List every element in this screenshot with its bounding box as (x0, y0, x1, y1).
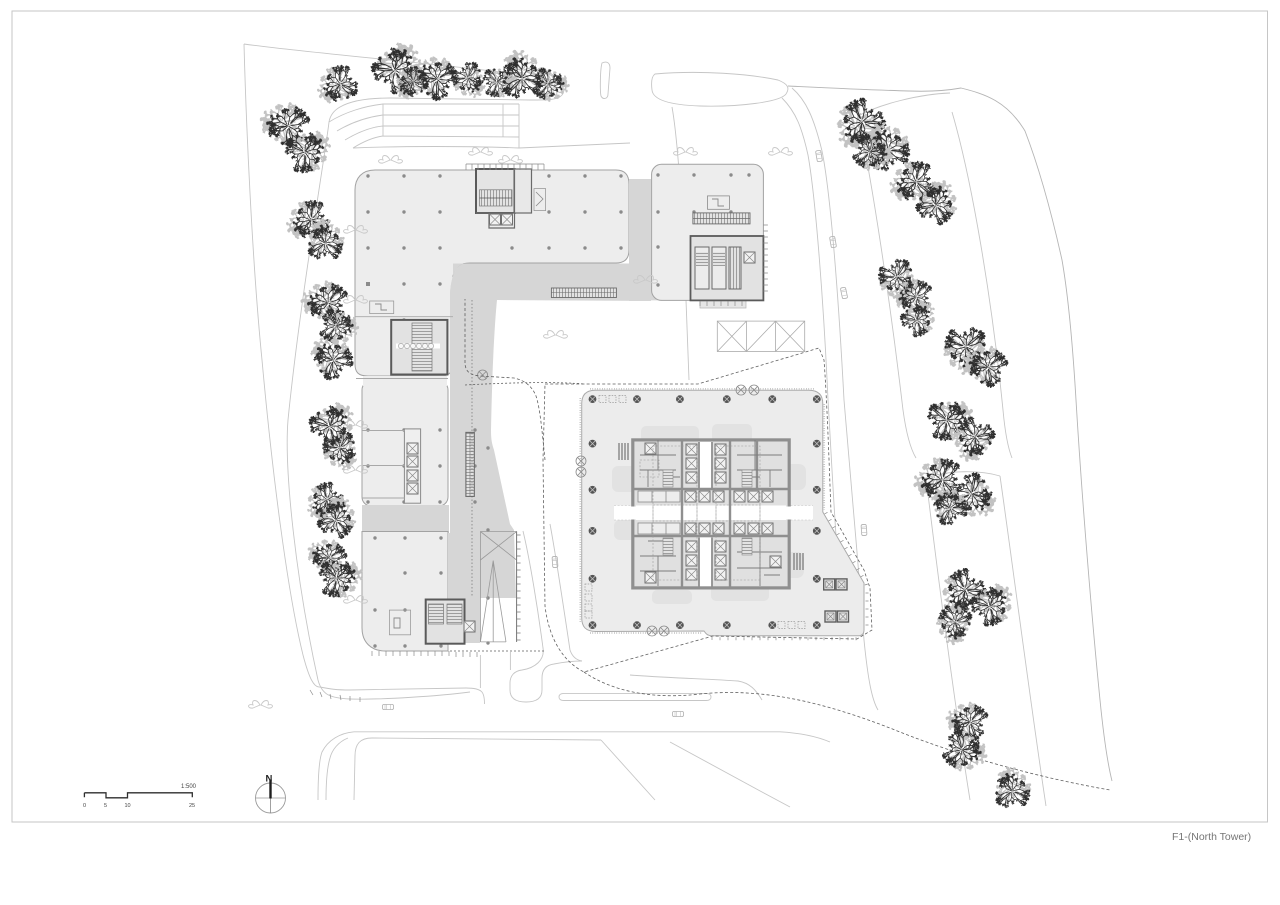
svg-text:N: N (266, 774, 273, 785)
svg-text:0: 0 (83, 803, 86, 809)
svg-text:F1-(North Tower): F1-(North Tower) (1172, 831, 1251, 843)
svg-text:5: 5 (104, 803, 107, 809)
svg-text:10: 10 (125, 803, 131, 809)
svg-text:25: 25 (189, 803, 195, 809)
svg-text:1:500: 1:500 (181, 784, 197, 790)
